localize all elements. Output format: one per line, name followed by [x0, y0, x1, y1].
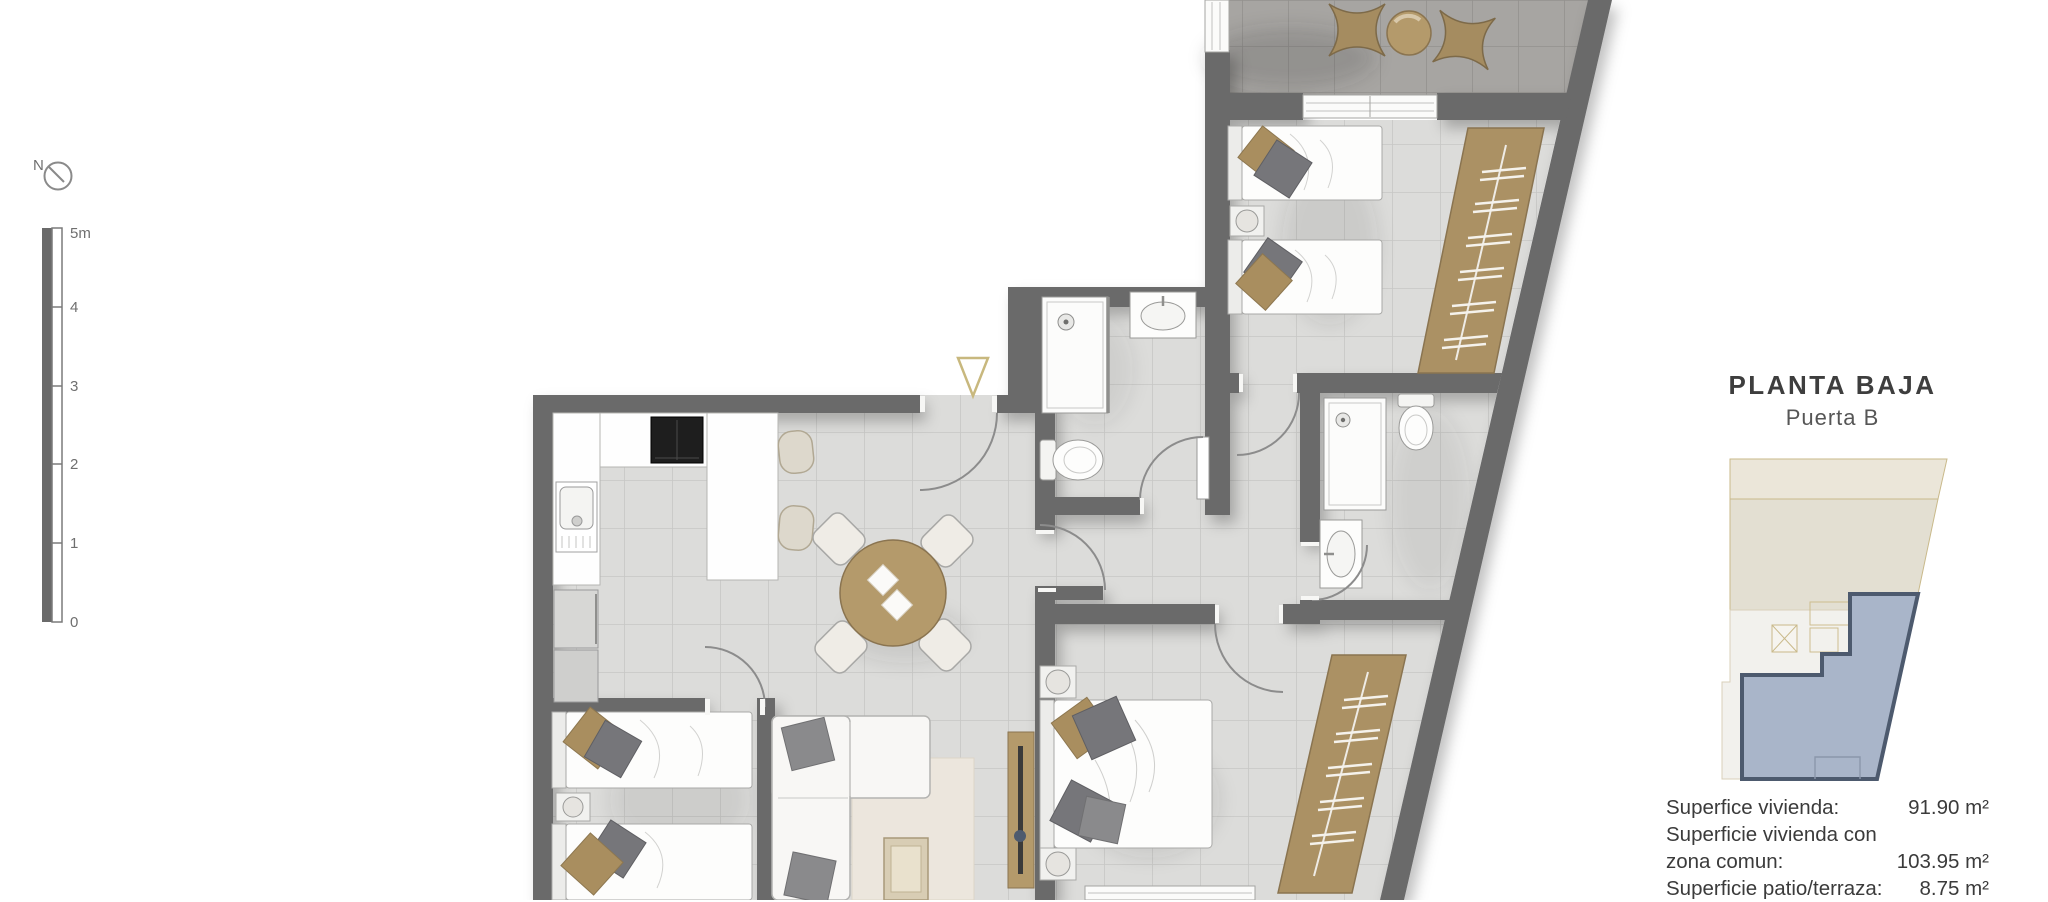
kitchen-fridge — [554, 590, 598, 648]
scale-label-5m: 5m — [70, 225, 91, 242]
bath1-shower-tray — [1042, 297, 1108, 413]
left-wall — [533, 395, 553, 900]
bath2-bottom-wall — [1300, 600, 1451, 620]
bedroom2-lamp — [1236, 210, 1258, 232]
master-top-wall — [1035, 604, 1215, 624]
scale-label-1: 1 — [70, 535, 78, 552]
kitchen-stool-1 — [777, 429, 815, 474]
bath2-shower-tray — [1324, 398, 1386, 510]
surface-label: Superficie patio/terraza: — [1666, 875, 1920, 902]
kitchen-peninsula — [707, 413, 778, 580]
floor-plan-page: { "compass": { "label": "N" }, "scale_ba… — [0, 0, 2048, 900]
scale-label-0: 0 — [70, 614, 78, 631]
master-lamp-top — [1046, 670, 1070, 694]
sofa-pillow-bottom — [784, 852, 836, 900]
master-window — [1085, 886, 1255, 900]
compass-north-label: N — [33, 157, 44, 174]
measurement-tools: N 5m 4 3 2 1 0 — [33, 157, 91, 631]
surface-value: 91.90 m² — [1908, 794, 1989, 821]
scale-label-4: 4 — [70, 299, 78, 316]
main-top-wall — [543, 395, 920, 413]
master-lamp-bottom — [1046, 852, 1070, 876]
bath1-door-leaf — [1197, 437, 1209, 499]
surface-row-zona-comun: Superficie vivienda con zona comun: 103.… — [1666, 821, 1989, 875]
entry-right-wall — [1008, 307, 1035, 413]
bed2a-headboard — [1228, 126, 1242, 200]
location-minimap — [1700, 452, 1950, 789]
scale-label-2: 2 — [70, 456, 78, 473]
kitchen-sink — [556, 482, 597, 552]
surface-label: Superfice vivienda: — [1666, 794, 1908, 821]
bath2-toilet — [1398, 394, 1434, 450]
bed2b-headboard — [1228, 240, 1242, 314]
scale-bar: 5m 4 3 2 1 0 — [42, 225, 91, 631]
bathroom1-bottom-wall — [1035, 497, 1140, 515]
terrace-sliding-door — [1303, 95, 1437, 118]
bathroom1-top-wall — [1008, 287, 1230, 307]
surface-areas: Superfice vivienda: 91.90 m² Superficie … — [1666, 794, 1989, 902]
kitchen-appliance — [554, 650, 598, 702]
surface-value: 8.75 m² — [1920, 875, 1990, 902]
surface-row-patio-terraza: Superficie patio/terraza: 8.75 m² — [1666, 875, 1989, 902]
entry-stub-wall — [997, 395, 1008, 413]
bedroom3-lamp — [563, 797, 583, 817]
minimap-canvas — [1700, 452, 1950, 784]
page-subtitle: Puerta B — [1660, 405, 2005, 431]
surface-row-vivienda: Superfice vivienda: 91.90 m² — [1666, 794, 1989, 821]
master-top-wall-stub — [1283, 604, 1303, 624]
bedroom2-bath2-top-wall — [1297, 373, 1502, 393]
master-pillow-gray-bottom2 — [1078, 796, 1125, 843]
scale-label-3: 3 — [70, 378, 78, 395]
corridor-right-wall-upper — [1300, 373, 1320, 542]
tv-console — [1008, 732, 1034, 888]
surface-label: Superficie vivienda con zona comun: — [1666, 821, 1897, 875]
page-title: PLANTA BAJA — [1660, 370, 2005, 401]
bedroom2-bottom-wall-stub — [1230, 373, 1239, 393]
entrance-marker-triangle — [958, 358, 988, 396]
surface-value: 103.95 m² — [1897, 848, 1989, 875]
minimap-building-upper — [1730, 459, 1947, 499]
bath1-toilet — [1040, 440, 1103, 480]
terrace-bottom-wall-right — [1437, 93, 1572, 120]
terrace-side-window — [1205, 0, 1229, 52]
kitchen-stool-2 — [777, 505, 815, 552]
bed3a-headboard — [552, 712, 566, 788]
terrace-bottom-wall-left — [1205, 93, 1303, 120]
info-panel: PLANTA BAJA Puerta B Superfice vivienda:… — [1660, 370, 2005, 900]
